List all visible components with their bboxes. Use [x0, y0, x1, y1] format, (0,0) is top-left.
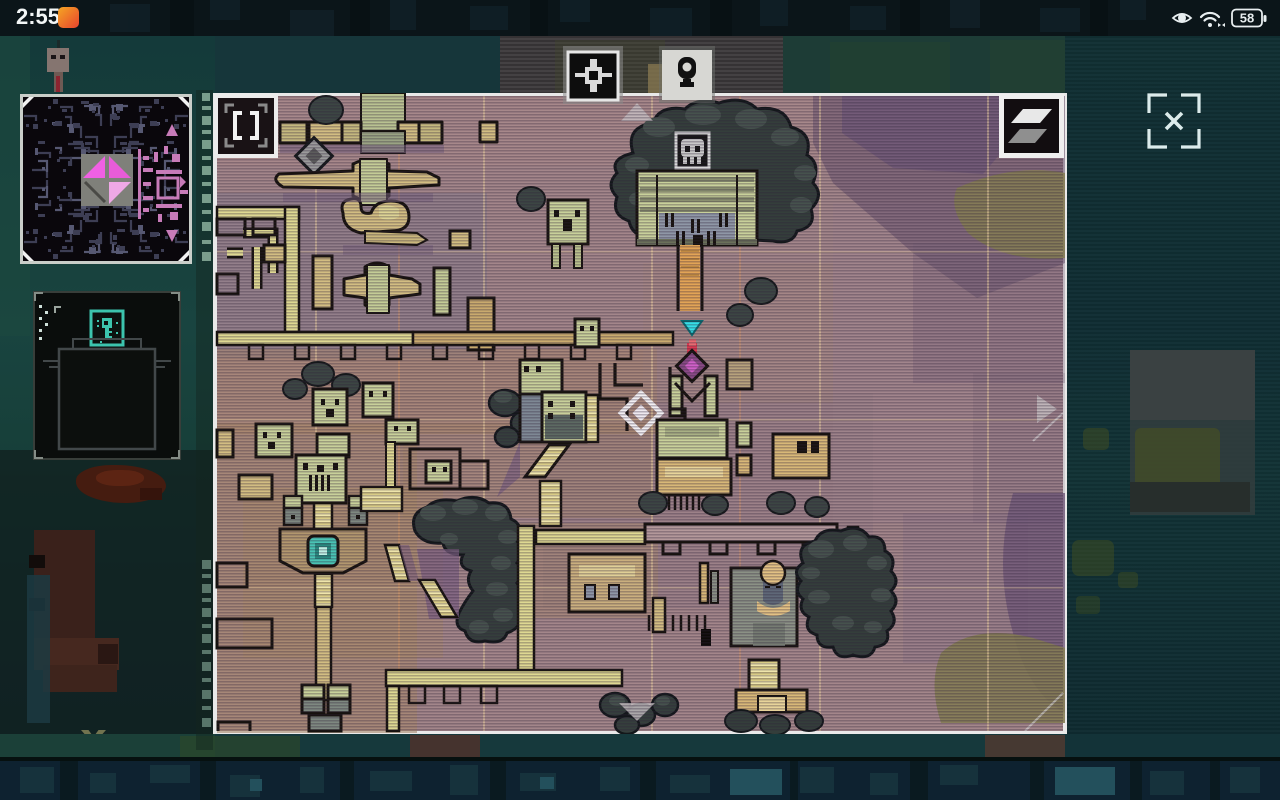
svg-text:58: 58: [1240, 11, 1254, 26]
